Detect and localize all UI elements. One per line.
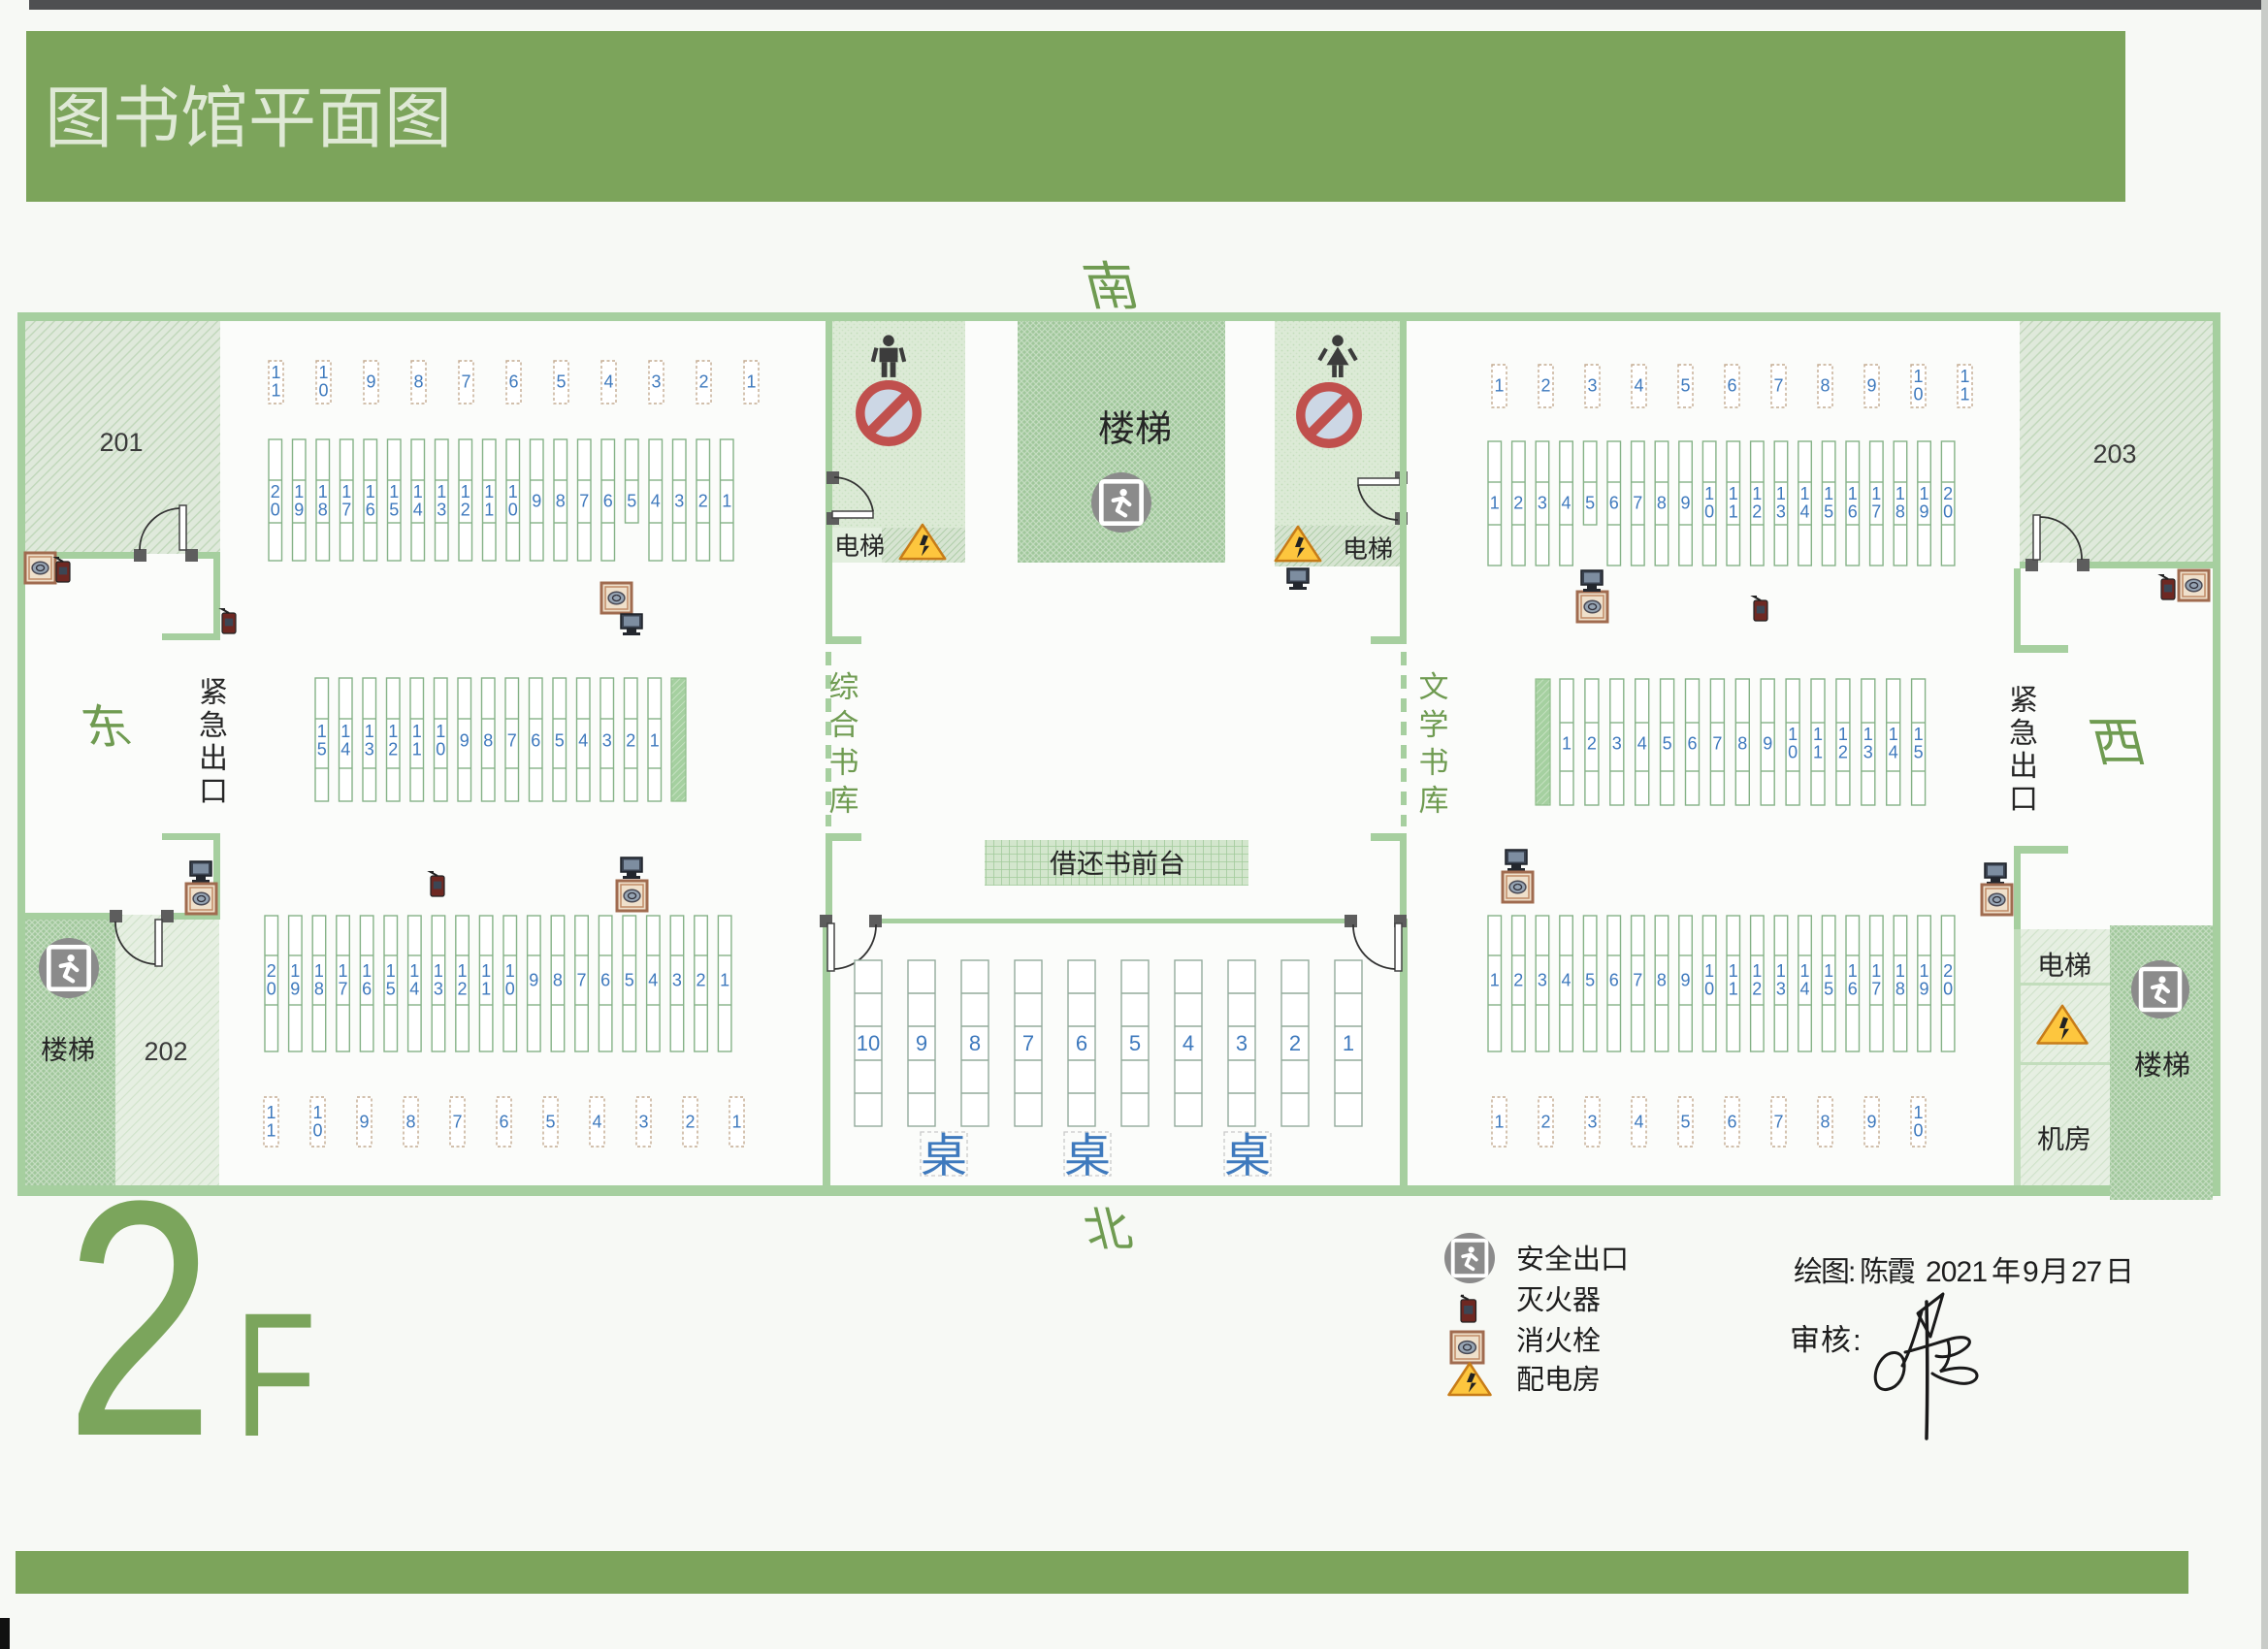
svg-text:1: 1 xyxy=(484,501,494,520)
svg-text:1: 1 xyxy=(1562,734,1571,754)
svg-text:5: 5 xyxy=(556,372,566,392)
svg-text:5: 5 xyxy=(1680,1113,1690,1132)
svg-text:0: 0 xyxy=(508,501,518,520)
svg-text:4: 4 xyxy=(1799,980,1809,999)
svg-text:1: 1 xyxy=(1824,961,1833,981)
svg-text:1: 1 xyxy=(1490,971,1500,990)
svg-text:7: 7 xyxy=(341,501,351,520)
svg-text:8: 8 xyxy=(1820,376,1830,396)
svg-text:5: 5 xyxy=(545,1113,555,1132)
svg-text:6: 6 xyxy=(508,372,518,392)
svg-text:1: 1 xyxy=(1838,725,1848,744)
svg-text:9: 9 xyxy=(1680,971,1690,990)
svg-text:5: 5 xyxy=(1914,743,1924,762)
svg-text:4: 4 xyxy=(1634,376,1643,396)
svg-text:4: 4 xyxy=(592,1113,601,1132)
svg-text:9: 9 xyxy=(1763,734,1772,754)
svg-text:8: 8 xyxy=(1737,734,1747,754)
svg-text:6: 6 xyxy=(1609,494,1619,513)
svg-text:6: 6 xyxy=(1076,1031,1087,1055)
svg-text:1: 1 xyxy=(1704,961,1714,981)
svg-text:1: 1 xyxy=(266,1103,275,1122)
svg-text::: : xyxy=(1848,1256,1856,1288)
svg-text:6: 6 xyxy=(366,501,375,520)
svg-text:6: 6 xyxy=(600,971,610,990)
svg-text:1: 1 xyxy=(437,482,446,501)
svg-text:1: 1 xyxy=(1752,484,1762,503)
svg-text:2: 2 xyxy=(685,1113,695,1132)
svg-text:5: 5 xyxy=(1680,376,1690,396)
svg-text:1: 1 xyxy=(1490,494,1500,513)
svg-text:1: 1 xyxy=(1848,484,1858,503)
svg-text:6: 6 xyxy=(499,1113,508,1132)
svg-text:1: 1 xyxy=(1776,484,1786,503)
svg-text:9: 9 xyxy=(1919,980,1928,999)
svg-text:3: 3 xyxy=(672,971,682,990)
svg-text:7: 7 xyxy=(338,980,347,999)
svg-text:9: 9 xyxy=(359,1113,369,1132)
svg-text:8: 8 xyxy=(318,501,328,520)
svg-text:5: 5 xyxy=(317,740,327,760)
svg-text:1: 1 xyxy=(1788,725,1798,744)
svg-text:203: 203 xyxy=(2092,439,2136,469)
svg-text:0: 0 xyxy=(1913,1121,1923,1141)
svg-text:8: 8 xyxy=(405,1113,415,1132)
svg-text:4: 4 xyxy=(409,980,419,999)
svg-text:1: 1 xyxy=(388,722,398,741)
svg-text:1: 1 xyxy=(1919,484,1928,503)
svg-text:1: 1 xyxy=(484,482,494,501)
svg-text:0: 0 xyxy=(1913,385,1923,404)
svg-text:2: 2 xyxy=(1513,494,1523,513)
svg-text:3: 3 xyxy=(602,731,612,751)
svg-text:1: 1 xyxy=(481,961,491,981)
svg-text:1: 1 xyxy=(413,482,423,501)
svg-text:2: 2 xyxy=(1587,734,1597,754)
svg-text:6: 6 xyxy=(1609,971,1619,990)
svg-text:5: 5 xyxy=(627,492,636,511)
svg-text:3: 3 xyxy=(1236,1031,1247,1055)
svg-text:6: 6 xyxy=(531,731,540,751)
svg-text:7: 7 xyxy=(1773,1113,1783,1132)
svg-text:3: 3 xyxy=(1587,1113,1597,1132)
svg-text:0: 0 xyxy=(1943,502,1953,522)
svg-text:1: 1 xyxy=(1889,725,1898,744)
svg-text:1: 1 xyxy=(457,961,467,981)
svg-text:1: 1 xyxy=(290,961,300,981)
svg-text:1: 1 xyxy=(1871,484,1881,503)
svg-text:3: 3 xyxy=(1538,494,1547,513)
svg-text:5: 5 xyxy=(625,971,634,990)
svg-text:4: 4 xyxy=(651,492,661,511)
svg-text:9: 9 xyxy=(1866,1113,1876,1132)
svg-text:1: 1 xyxy=(412,722,422,741)
svg-text:5: 5 xyxy=(1824,980,1833,999)
svg-text:27: 27 xyxy=(2071,1256,2102,1288)
svg-text:1: 1 xyxy=(365,722,374,741)
svg-text:3: 3 xyxy=(1587,376,1597,396)
svg-text:7: 7 xyxy=(461,372,470,392)
svg-text:7: 7 xyxy=(1712,734,1722,754)
svg-text:0: 0 xyxy=(312,1121,322,1141)
svg-text:1: 1 xyxy=(271,381,280,401)
svg-text:6: 6 xyxy=(603,492,613,511)
svg-text:5: 5 xyxy=(1824,502,1833,522)
svg-text:8: 8 xyxy=(1657,494,1667,513)
svg-text:7: 7 xyxy=(1633,971,1642,990)
svg-text:8: 8 xyxy=(314,980,324,999)
svg-text:1: 1 xyxy=(317,722,327,741)
svg-text:1: 1 xyxy=(1343,1031,1354,1055)
svg-text:0: 0 xyxy=(267,980,276,999)
svg-text:1: 1 xyxy=(650,731,660,751)
svg-text:4: 4 xyxy=(413,501,423,520)
svg-text:2: 2 xyxy=(461,501,470,520)
svg-text:0: 0 xyxy=(436,740,445,760)
svg-text:1: 1 xyxy=(389,482,399,501)
svg-text:8: 8 xyxy=(1657,971,1667,990)
svg-text:7: 7 xyxy=(1633,494,1642,513)
svg-text:3: 3 xyxy=(1538,971,1547,990)
svg-text:2: 2 xyxy=(1752,502,1762,522)
svg-text:1: 1 xyxy=(318,363,328,382)
svg-text:4: 4 xyxy=(648,971,658,990)
svg-text:8: 8 xyxy=(556,492,566,511)
svg-text:1: 1 xyxy=(1729,961,1738,981)
svg-text:3: 3 xyxy=(437,501,446,520)
svg-text:6: 6 xyxy=(1687,734,1697,754)
svg-text:9: 9 xyxy=(1919,502,1928,522)
svg-text:0: 0 xyxy=(1704,980,1714,999)
svg-text:1: 1 xyxy=(341,482,351,501)
svg-text:1: 1 xyxy=(294,482,304,501)
svg-text:1: 1 xyxy=(340,722,350,741)
svg-text:6: 6 xyxy=(1727,1113,1736,1132)
svg-text:4: 4 xyxy=(1561,494,1571,513)
svg-text:0: 0 xyxy=(1788,743,1798,762)
svg-text:3: 3 xyxy=(1863,743,1873,762)
svg-text:2: 2 xyxy=(1540,376,1550,396)
svg-text:1: 1 xyxy=(731,1113,741,1132)
svg-text:6: 6 xyxy=(1727,376,1736,396)
svg-text:9: 9 xyxy=(460,731,470,751)
svg-text:1: 1 xyxy=(271,363,280,382)
svg-text:1: 1 xyxy=(461,482,470,501)
svg-text:4: 4 xyxy=(578,731,588,751)
svg-text:4: 4 xyxy=(1637,734,1647,754)
svg-text:9: 9 xyxy=(529,971,538,990)
svg-text:7: 7 xyxy=(1871,502,1881,522)
svg-text:2: 2 xyxy=(457,980,467,999)
svg-text:4: 4 xyxy=(1799,502,1809,522)
svg-text:1: 1 xyxy=(1848,961,1858,981)
svg-text:3: 3 xyxy=(638,1113,648,1132)
svg-text:3: 3 xyxy=(1776,980,1786,999)
svg-text:3: 3 xyxy=(365,740,374,760)
svg-text:1: 1 xyxy=(314,961,324,981)
svg-text:5: 5 xyxy=(1663,734,1672,754)
svg-text:201: 201 xyxy=(99,428,143,457)
svg-text:2: 2 xyxy=(388,740,398,760)
svg-text:2: 2 xyxy=(626,731,635,751)
svg-text:5: 5 xyxy=(555,731,565,751)
svg-text:9: 9 xyxy=(2023,1256,2039,1288)
svg-text:2: 2 xyxy=(1540,1113,1550,1132)
svg-text:1: 1 xyxy=(1494,376,1504,396)
svg-text:1: 1 xyxy=(1729,484,1738,503)
svg-text:1: 1 xyxy=(1919,961,1928,981)
svg-text:7: 7 xyxy=(1773,376,1783,396)
svg-text:1: 1 xyxy=(1704,484,1714,503)
svg-text:2: 2 xyxy=(698,372,708,392)
svg-text:1: 1 xyxy=(1913,1103,1923,1122)
svg-text:6: 6 xyxy=(1848,980,1858,999)
svg-text:1: 1 xyxy=(1729,980,1738,999)
svg-text:9: 9 xyxy=(916,1031,927,1055)
svg-text:1: 1 xyxy=(505,961,515,981)
svg-text:0: 0 xyxy=(1704,502,1714,522)
svg-text:4: 4 xyxy=(603,372,613,392)
svg-text:7: 7 xyxy=(1871,980,1881,999)
svg-text:9: 9 xyxy=(1680,494,1690,513)
svg-text:4: 4 xyxy=(1634,1113,1643,1132)
svg-text:1: 1 xyxy=(1960,367,1969,386)
svg-text:4: 4 xyxy=(1561,971,1571,990)
svg-text:1: 1 xyxy=(1895,961,1905,981)
svg-text:1: 1 xyxy=(746,372,756,392)
svg-text:1: 1 xyxy=(1914,725,1924,744)
svg-text:1: 1 xyxy=(1752,961,1762,981)
svg-text:1: 1 xyxy=(481,980,491,999)
svg-text:7: 7 xyxy=(1022,1031,1034,1055)
svg-text:7: 7 xyxy=(576,971,586,990)
svg-text:1: 1 xyxy=(312,1103,322,1122)
svg-text:9: 9 xyxy=(290,980,300,999)
svg-text:1: 1 xyxy=(1824,484,1833,503)
svg-text:1: 1 xyxy=(1799,961,1809,981)
svg-text:7: 7 xyxy=(507,731,517,751)
svg-text:1: 1 xyxy=(318,482,328,501)
svg-text:8: 8 xyxy=(1895,980,1905,999)
svg-text:9: 9 xyxy=(366,372,375,392)
svg-text:3: 3 xyxy=(1612,734,1622,754)
svg-text:4: 4 xyxy=(1183,1031,1194,1055)
svg-text:8: 8 xyxy=(1820,1113,1830,1132)
svg-text:2: 2 xyxy=(1513,971,1523,990)
svg-text:8: 8 xyxy=(553,971,563,990)
svg-text:202: 202 xyxy=(144,1037,187,1066)
svg-text:2: 2 xyxy=(271,482,280,501)
svg-text:1: 1 xyxy=(1813,743,1823,762)
svg-text:3: 3 xyxy=(1776,502,1786,522)
svg-text:1: 1 xyxy=(1913,367,1923,386)
svg-text:2021: 2021 xyxy=(1926,1256,1988,1288)
svg-text:1: 1 xyxy=(366,482,375,501)
svg-text:6: 6 xyxy=(1848,502,1858,522)
svg-text:2: 2 xyxy=(698,492,708,511)
svg-text:3: 3 xyxy=(651,372,661,392)
svg-text:2: 2 xyxy=(65,1132,214,1506)
svg-text:2: 2 xyxy=(1289,1031,1301,1055)
svg-text:9: 9 xyxy=(532,492,541,511)
svg-text:2: 2 xyxy=(1838,743,1848,762)
svg-text:0: 0 xyxy=(271,501,280,520)
svg-text:10: 10 xyxy=(857,1031,880,1055)
svg-text:5: 5 xyxy=(1585,971,1595,990)
svg-text:9: 9 xyxy=(294,501,304,520)
svg-text:1: 1 xyxy=(338,961,347,981)
svg-text:0: 0 xyxy=(318,381,328,401)
svg-text:9: 9 xyxy=(1866,376,1876,396)
svg-text:0: 0 xyxy=(1943,980,1953,999)
svg-text:2: 2 xyxy=(696,971,705,990)
svg-text:8: 8 xyxy=(413,372,423,392)
svg-text:3: 3 xyxy=(434,980,443,999)
svg-text:8: 8 xyxy=(1895,502,1905,522)
svg-text:1: 1 xyxy=(436,722,445,741)
svg-text:2: 2 xyxy=(1752,980,1762,999)
svg-text:3: 3 xyxy=(674,492,684,511)
svg-text:4: 4 xyxy=(1889,743,1898,762)
svg-text:1: 1 xyxy=(1871,961,1881,981)
svg-text:1: 1 xyxy=(722,492,731,511)
svg-text:1: 1 xyxy=(362,961,372,981)
svg-text:1: 1 xyxy=(266,1121,275,1141)
svg-text:4: 4 xyxy=(340,740,350,760)
svg-text:2: 2 xyxy=(267,961,276,981)
svg-text:1: 1 xyxy=(409,961,419,981)
svg-text:8: 8 xyxy=(483,731,493,751)
svg-text:2: 2 xyxy=(1943,961,1953,981)
svg-text:2: 2 xyxy=(1943,484,1953,503)
svg-text:6: 6 xyxy=(362,980,372,999)
svg-text:7: 7 xyxy=(452,1113,462,1132)
svg-text:0: 0 xyxy=(505,980,515,999)
svg-text:1: 1 xyxy=(1813,725,1823,744)
svg-text:1: 1 xyxy=(1799,484,1809,503)
svg-text:5: 5 xyxy=(389,501,399,520)
svg-text::: : xyxy=(1853,1323,1862,1357)
svg-text:8: 8 xyxy=(969,1031,981,1055)
svg-text:1: 1 xyxy=(1729,502,1738,522)
svg-text:1: 1 xyxy=(412,740,422,760)
svg-text:1: 1 xyxy=(1960,385,1969,404)
svg-text:1: 1 xyxy=(386,961,396,981)
svg-text:1: 1 xyxy=(720,971,729,990)
svg-text:1: 1 xyxy=(1494,1113,1504,1132)
svg-text:1: 1 xyxy=(1895,484,1905,503)
svg-text:5: 5 xyxy=(386,980,396,999)
svg-text:1: 1 xyxy=(1776,961,1786,981)
svg-text:1: 1 xyxy=(434,961,443,981)
svg-text:1: 1 xyxy=(1863,725,1873,744)
svg-text:5: 5 xyxy=(1129,1031,1141,1055)
svg-text:1: 1 xyxy=(508,482,518,501)
svg-text:5: 5 xyxy=(1585,494,1595,513)
svg-text:F: F xyxy=(235,1276,316,1473)
svg-text:7: 7 xyxy=(579,492,589,511)
